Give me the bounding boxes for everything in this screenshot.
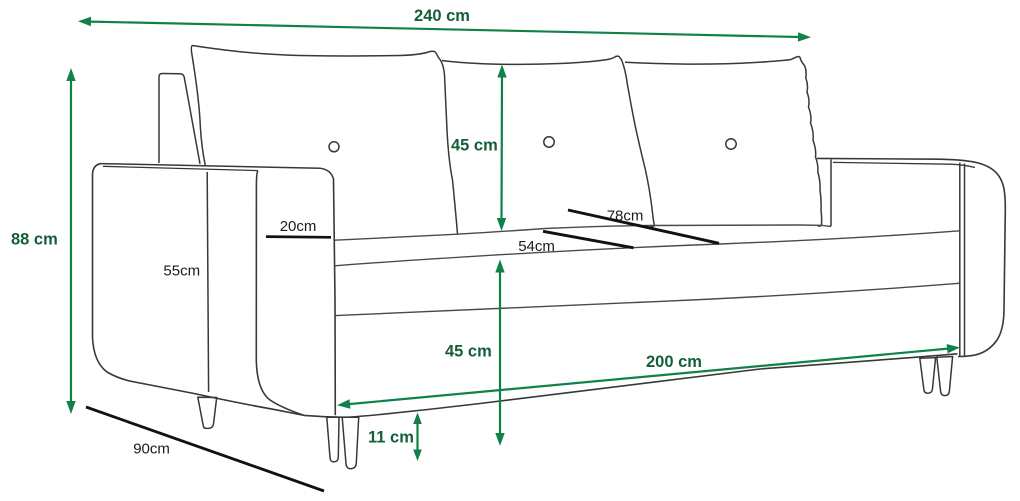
svg-text:45 cm: 45 cm [451,137,498,155]
svg-text:54cm: 54cm [518,238,555,255]
svg-text:55cm: 55cm [163,262,200,279]
svg-text:90cm: 90cm [133,441,170,458]
svg-text:11 cm: 11 cm [368,429,414,447]
svg-text:88 cm: 88 cm [11,231,58,249]
svg-text:240 cm: 240 cm [414,7,470,25]
svg-text:45 cm: 45 cm [445,343,492,361]
svg-text:200 cm: 200 cm [646,353,702,371]
svg-text:20cm: 20cm [280,218,317,235]
svg-text:78cm: 78cm [607,207,644,224]
